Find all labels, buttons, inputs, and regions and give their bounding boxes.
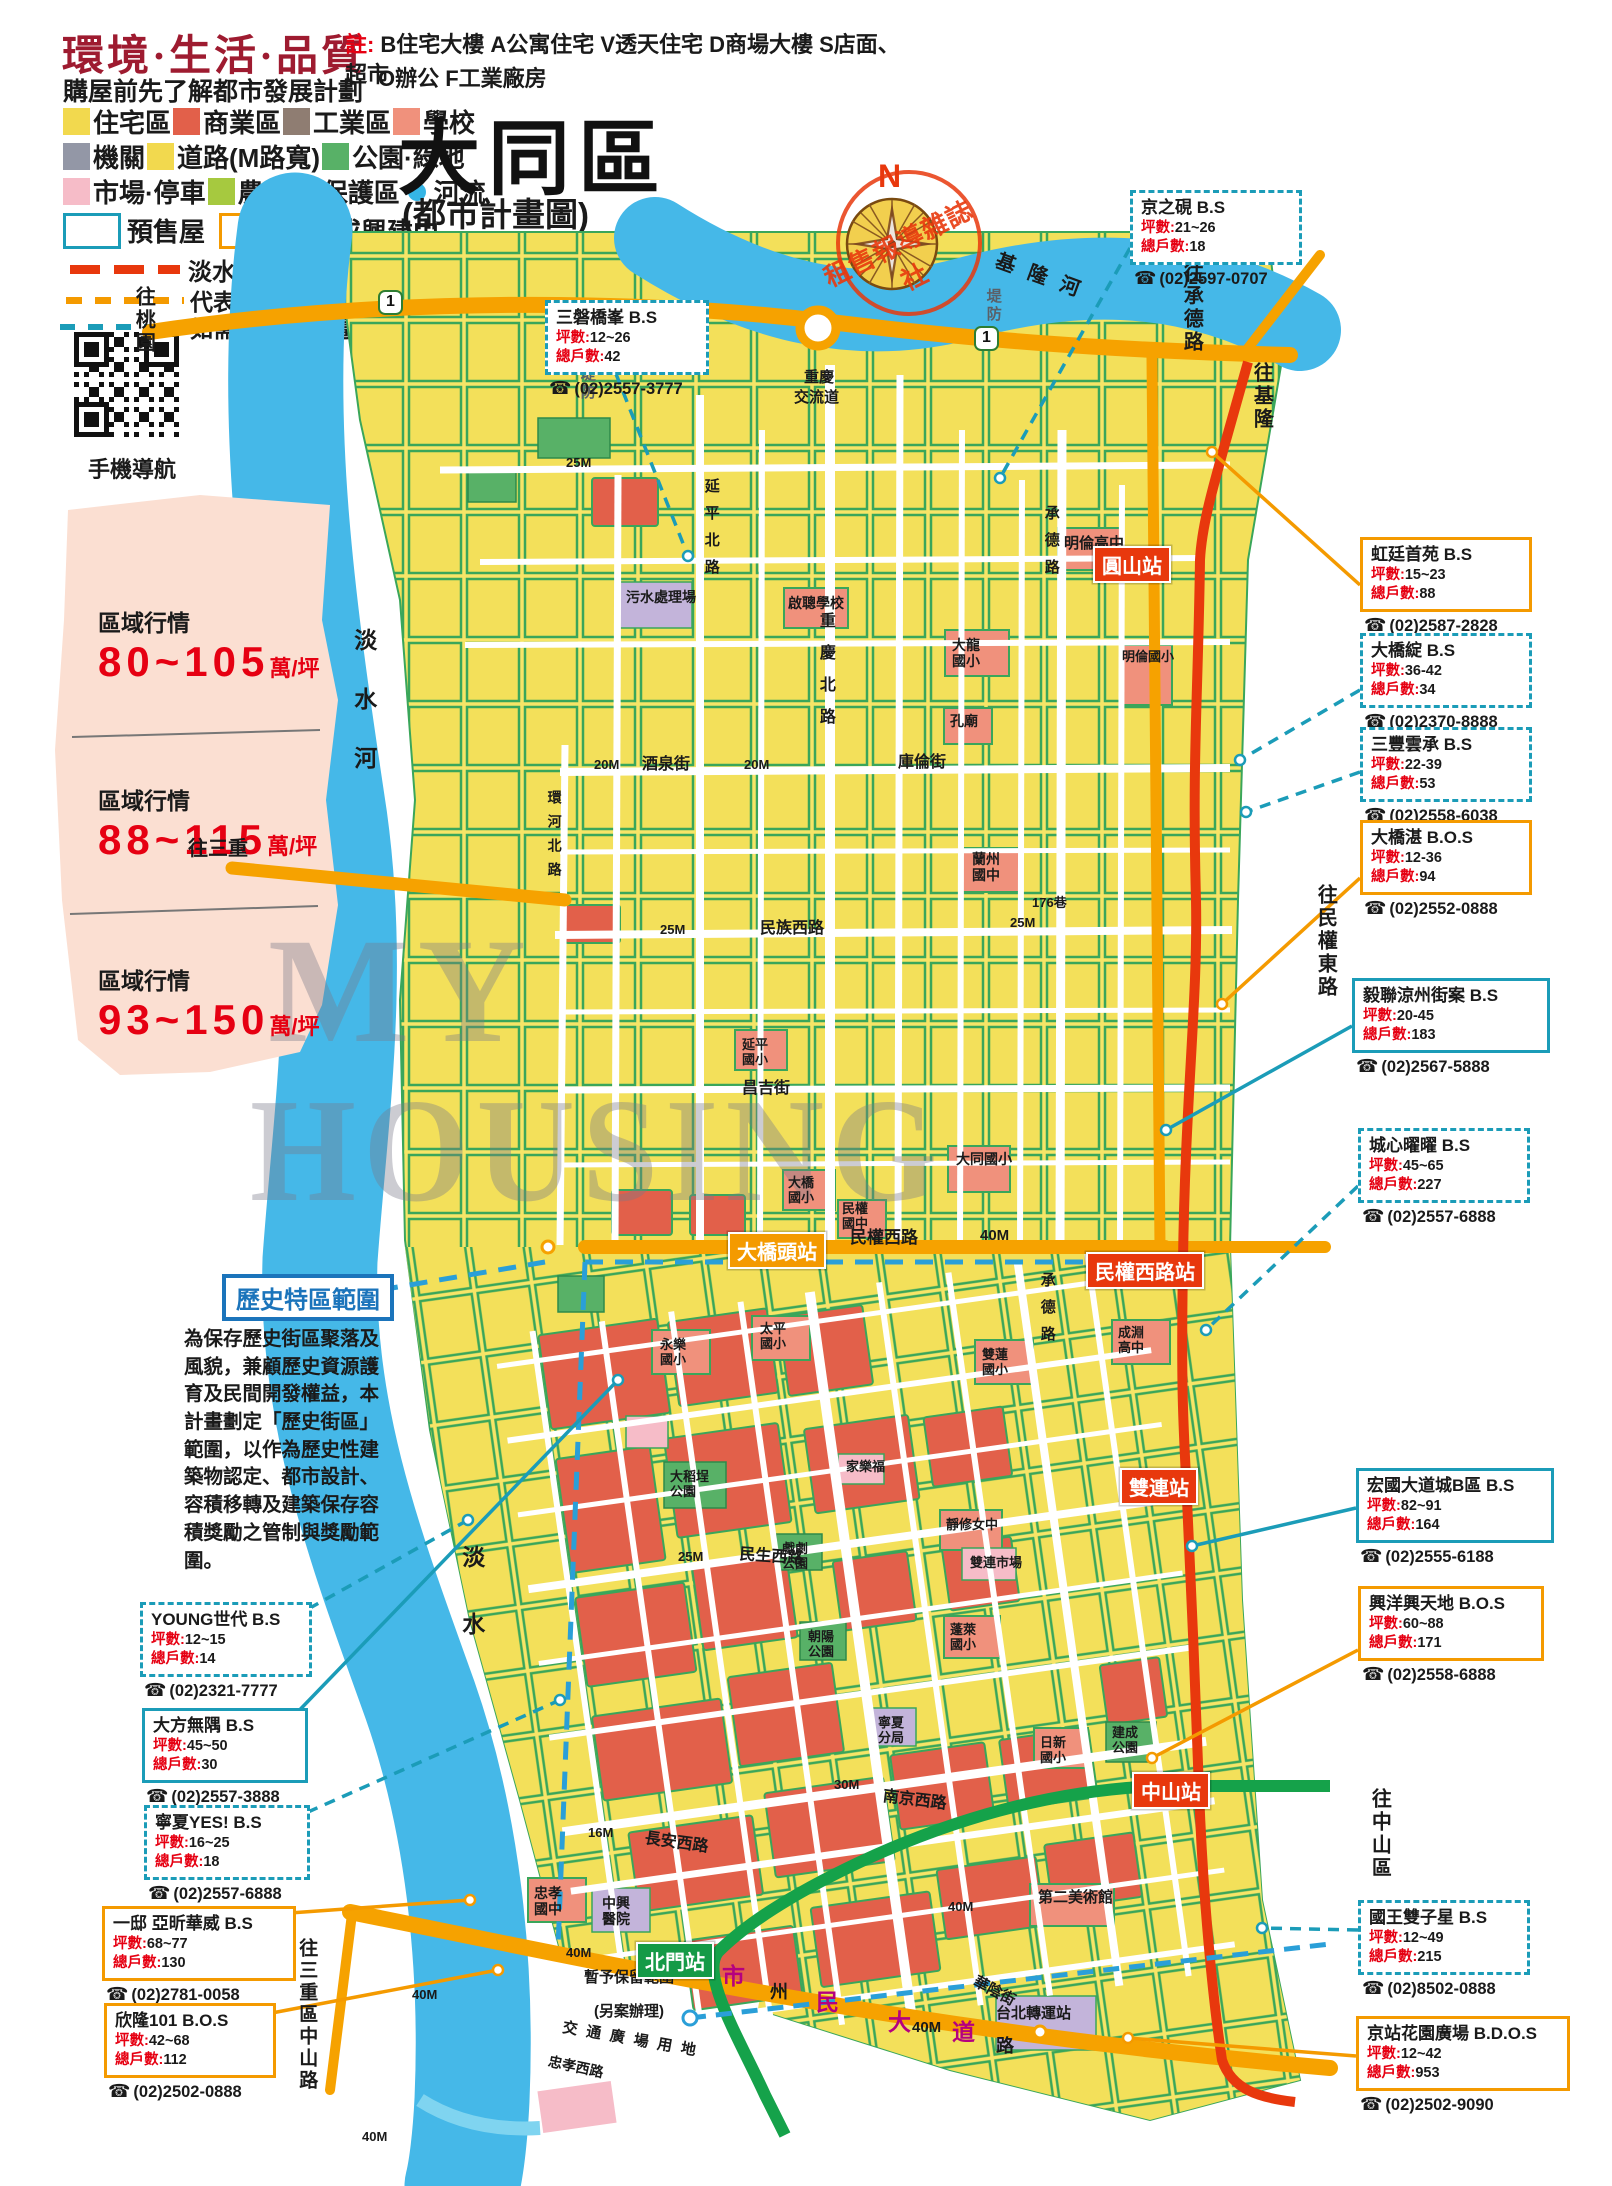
phone-icon: ☎ [1362,1664,1384,1684]
phone-icon: ☎ [549,378,571,398]
ping-value: 12~15 [185,1632,226,1648]
listing-ping-row: 坪數:12~49 [1369,1929,1519,1948]
listing-box: 大橋綻 B.S坪數:36-42總戶數:34 [1360,633,1532,708]
listing-callout: 興洋興天地 B.O.S坪數:60~88總戶數:171☎(02)2558-6888 [1358,1586,1544,1685]
listing-units-row: 總戶數:53 [1371,775,1521,794]
units-label: 總戶數: [151,1651,199,1667]
listing-callout: 宏國大道城B區 B.S坪數:82~91總戶數:164☎(02)2555-6188 [1356,1468,1554,1567]
ping-label: 坪數: [155,1835,189,1851]
listing-phone: ☎(02)2558-6888 [1362,1664,1544,1685]
units-label: 總戶數: [1371,586,1419,602]
listing-name: 三磐橋峯 B.S [556,307,698,329]
listing-phone: ☎(02)2557-6888 [148,1883,310,1904]
listing-units-row: 總戶數:164 [1367,1516,1543,1535]
ping-label: 坪數: [556,330,590,346]
phone-number: (02)2502-9090 [1385,2096,1493,2114]
listing-units-row: 總戶數:18 [1141,238,1291,257]
phone-icon: ☎ [1360,2094,1382,2114]
listing-phone: ☎(02)2567-5888 [1356,1056,1550,1077]
units-value: 227 [1417,1177,1441,1193]
listing-box: 京站花園廣場 B.D.O.S坪數:12~42總戶數:953 [1356,2016,1570,2091]
listing-name: 三豐雲承 B.S [1371,734,1521,756]
listing-phone: ☎(02)2552-0888 [1364,898,1532,919]
listing-name: 毅聯涼州街案 B.S [1363,985,1539,1007]
listing-box: 大方無隅 B.S坪數:45~50總戶數:30 [142,1708,308,1783]
ping-value: 60~88 [1403,1616,1444,1632]
listing-box: 京之硯 B.S坪數:21~26總戶數:18 [1130,190,1302,265]
listing-units-row: 總戶數:953 [1367,2064,1559,2083]
listing-ping-row: 坪數:20-45 [1363,1007,1539,1026]
listing-ping-row: 坪數:60~88 [1369,1615,1533,1634]
listing-callout: 國王雙子星 B.S坪數:12~49總戶數:215☎(02)8502-0888 [1358,1900,1530,1999]
listing-callout: 一邸 亞昕華威 B.S坪數:68~77總戶數:130☎(02)2781-0058 [102,1906,296,2005]
units-value: 88 [1419,586,1435,602]
listing-box: 興洋興天地 B.O.S坪數:60~88總戶數:171 [1358,1586,1544,1661]
listing-phone: ☎(02)2502-9090 [1360,2094,1570,2115]
units-value: 18 [1189,239,1205,255]
units-label: 總戶數: [155,1854,203,1870]
listing-name: 大方無隅 B.S [153,1715,297,1737]
ping-label: 坪數: [1369,1158,1403,1174]
phone-number: (02)2555-6188 [1385,1548,1493,1566]
units-label: 總戶數: [1367,2065,1415,2081]
phone-icon: ☎ [1134,268,1156,288]
listing-name: 寧夏YES! B.S [155,1812,299,1834]
listing-box: 毅聯涼州街案 B.S坪數:20-45總戶數:183 [1352,978,1550,1053]
phone-icon: ☎ [1364,615,1386,635]
listing-ping-row: 坪數:12~26 [556,329,698,348]
listing-callout: 城心曜曜 B.S坪數:45~65總戶數:227☎(02)2557-6888 [1358,1128,1530,1227]
listing-name: 大橋湛 B.O.S [1371,827,1521,849]
units-label: 總戶數: [1371,682,1419,698]
listing-box: 寧夏YES! B.S坪數:16~25總戶數:18 [144,1805,310,1880]
listing-callout: 京之硯 B.S坪數:21~26總戶數:18☎(02)2597-0707 [1130,190,1302,289]
units-value: 18 [203,1854,219,1870]
listing-units-row: 總戶數:112 [115,2051,265,2070]
ping-value: 15~23 [1405,567,1446,583]
units-value: 53 [1419,776,1435,792]
units-label: 總戶數: [1369,1177,1417,1193]
listing-phone: ☎(02)2555-6188 [1360,1546,1554,1567]
ping-value: 12~49 [1403,1930,1444,1946]
ping-label: 坪數: [1371,663,1405,679]
listing-units-row: 總戶數:34 [1371,681,1521,700]
units-value: 215 [1417,1949,1441,1965]
listing-phone: ☎(02)2597-0707 [1134,268,1302,289]
listing-box: YOUNG世代 B.S坪數:12~15總戶數:14 [140,1602,312,1677]
listing-name: 京站花園廣場 B.D.O.S [1367,2023,1559,2045]
listing-callout: 欣隆101 B.O.S坪數:42~68總戶數:112☎(02)2502-0888 [104,2003,276,2102]
listing-name: YOUNG世代 B.S [151,1609,301,1631]
ping-label: 坪數: [1371,850,1405,866]
listing-box: 三豐雲承 B.S坪數:22-39總戶數:53 [1360,727,1532,802]
ping-value: 21~26 [1175,220,1216,236]
listing-callout: 大方無隅 B.S坪數:45~50總戶數:30☎(02)2557-3888 [142,1708,308,1807]
units-value: 183 [1411,1027,1435,1043]
phone-number: (02)2502-0888 [133,2083,241,2101]
listing-ping-row: 坪數:42~68 [115,2032,265,2051]
ping-value: 12~26 [590,330,631,346]
units-label: 總戶數: [153,1757,201,1773]
units-value: 130 [161,1955,185,1971]
units-value: 42 [604,349,620,365]
phone-icon: ☎ [146,1786,168,1806]
listing-units-row: 總戶數:171 [1369,1634,1533,1653]
listing-phone: ☎(02)2781-0058 [106,1984,296,2005]
ping-label: 坪數: [1367,2046,1401,2062]
listing-box: 大橋湛 B.O.S坪數:12-36總戶數:94 [1360,820,1532,895]
listing-callout-layer: 京之硯 B.S坪數:21~26總戶數:18☎(02)2597-0707三磐橋峯 … [0,0,1612,2186]
ping-label: 坪數: [1371,757,1405,773]
listing-name: 京之硯 B.S [1141,197,1291,219]
units-label: 總戶數: [1367,1517,1415,1533]
listing-box: 城心曜曜 B.S坪數:45~65總戶數:227 [1358,1128,1530,1203]
listing-name: 宏國大道城B區 B.S [1367,1475,1543,1497]
ping-value: 16~25 [189,1835,230,1851]
phone-number: (02)2552-0888 [1389,900,1497,918]
listing-ping-row: 坪數:16~25 [155,1834,299,1853]
ping-value: 36-42 [1405,663,1442,679]
listing-units-row: 總戶數:42 [556,348,698,367]
listing-units-row: 總戶數:227 [1369,1176,1519,1195]
phone-icon: ☎ [144,1680,166,1700]
listing-ping-row: 坪數:15~23 [1371,566,1521,585]
listing-name: 大橋綻 B.S [1371,640,1521,662]
listing-units-row: 總戶數:88 [1371,585,1521,604]
ping-value: 12~42 [1401,2046,1442,2062]
ping-value: 20-45 [1397,1008,1434,1024]
listing-ping-row: 坪數:12~15 [151,1631,301,1650]
ping-label: 坪數: [1367,1498,1401,1514]
ping-label: 坪數: [1369,1616,1403,1632]
ping-value: 45~65 [1403,1158,1444,1174]
phone-icon: ☎ [1362,1978,1384,1998]
phone-icon: ☎ [148,1883,170,1903]
listing-units-row: 總戶數:130 [113,1954,285,1973]
listing-callout: YOUNG世代 B.S坪數:12~15總戶數:14☎(02)2321-7777 [140,1602,312,1701]
listing-phone: ☎(02)2557-6888 [1362,1206,1530,1227]
phone-number: (02)2597-0707 [1159,270,1267,288]
phone-number: (02)2567-5888 [1381,1058,1489,1076]
phone-number: (02)8502-0888 [1387,1980,1495,1998]
ping-value: 12-36 [1405,850,1442,866]
listing-callout: 毅聯涼州街案 B.S坪數:20-45總戶數:183☎(02)2567-5888 [1352,978,1550,1077]
listing-ping-row: 坪數:45~50 [153,1737,297,1756]
phone-number: (02)2557-6888 [173,1885,281,1903]
phone-number: (02)2321-7777 [169,1682,277,1700]
ping-label: 坪數: [151,1632,185,1648]
listing-units-row: 總戶數:30 [153,1756,297,1775]
phone-icon: ☎ [1360,1546,1382,1566]
listing-phone: ☎(02)2502-0888 [108,2081,276,2102]
ping-label: 坪數: [115,2033,149,2049]
listing-units-row: 總戶數:183 [1363,1026,1539,1045]
listing-units-row: 總戶數:14 [151,1650,301,1669]
phone-icon: ☎ [106,1984,128,2004]
phone-number: (02)2781-0058 [131,1986,239,2004]
listing-name: 欣隆101 B.O.S [115,2010,265,2032]
ping-value: 42~68 [149,2033,190,2049]
units-label: 總戶數: [556,349,604,365]
ping-value: 68~77 [147,1936,188,1952]
listing-callout: 三豐雲承 B.S坪數:22-39總戶數:53☎(02)2558-6038 [1360,727,1532,826]
phone-number: (02)2557-3888 [171,1788,279,1806]
listing-ping-row: 坪數:22-39 [1371,756,1521,775]
phone-icon: ☎ [1362,1206,1384,1226]
listing-units-row: 總戶數:215 [1369,1948,1519,1967]
listing-ping-row: 坪數:12~42 [1367,2045,1559,2064]
listing-box: 三磐橋峯 B.S坪數:12~26總戶數:42 [545,300,709,375]
magazine-map-page: MY HOUSING 環境·生活·品質 購屋前先了解都市發展計劃 註:B住宅大樓… [0,0,1612,2186]
units-label: 總戶數: [113,1955,161,1971]
units-label: 總戶數: [1141,239,1189,255]
phone-icon: ☎ [108,2081,130,2101]
listing-name: 興洋興天地 B.O.S [1369,1593,1533,1615]
ping-label: 坪數: [1371,567,1405,583]
units-value: 164 [1415,1517,1439,1533]
listing-name: 一邸 亞昕華威 B.S [113,1913,285,1935]
listing-box: 宏國大道城B區 B.S坪數:82~91總戶數:164 [1356,1468,1554,1543]
listing-box: 一邸 亞昕華威 B.S坪數:68~77總戶數:130 [102,1906,296,1981]
units-label: 總戶數: [1363,1027,1411,1043]
ping-label: 坪數: [113,1936,147,1952]
listing-phone: ☎(02)8502-0888 [1362,1978,1530,1999]
units-value: 14 [199,1651,215,1667]
listing-callout: 虹廷首苑 B.S坪數:15~23總戶數:88☎(02)2587-2828 [1360,537,1532,636]
units-value: 171 [1417,1635,1441,1651]
listing-box: 虹廷首苑 B.S坪數:15~23總戶數:88 [1360,537,1532,612]
units-value: 34 [1419,682,1435,698]
units-value: 953 [1415,2065,1439,2081]
units-label: 總戶數: [1371,776,1419,792]
listing-callout: 三磐橋峯 B.S坪數:12~26總戶數:42☎(02)2557-3777 [545,300,709,399]
listing-ping-row: 坪數:12-36 [1371,849,1521,868]
units-value: 30 [201,1757,217,1773]
listing-callout: 寧夏YES! B.S坪數:16~25總戶數:18☎(02)2557-6888 [144,1805,310,1904]
ping-label: 坪數: [1363,1008,1397,1024]
phone-icon: ☎ [1356,1056,1378,1076]
listing-box: 欣隆101 B.O.S坪數:42~68總戶數:112 [104,2003,276,2078]
listing-name: 虹廷首苑 B.S [1371,544,1521,566]
phone-number: (02)2558-6888 [1387,1666,1495,1684]
listing-callout: 大橋綻 B.S坪數:36-42總戶數:34☎(02)2370-8888 [1360,633,1532,732]
listing-ping-row: 坪數:21~26 [1141,219,1291,238]
listing-units-row: 總戶數:94 [1371,868,1521,887]
listing-name: 國王雙子星 B.S [1369,1907,1519,1929]
listing-phone: ☎(02)2557-3888 [146,1786,308,1807]
listing-name: 城心曜曜 B.S [1369,1135,1519,1157]
units-label: 總戶數: [1369,1635,1417,1651]
units-label: 總戶數: [1371,869,1419,885]
units-label: 總戶數: [1369,1949,1417,1965]
listing-phone: ☎(02)2557-3777 [549,378,709,399]
ping-label: 坪數: [1369,1930,1403,1946]
units-value: 94 [1419,869,1435,885]
units-value: 112 [163,2052,186,2068]
ping-label: 坪數: [1141,220,1175,236]
listing-units-row: 總戶數:18 [155,1853,299,1872]
units-label: 總戶數: [115,2052,163,2068]
listing-box: 國王雙子星 B.S坪數:12~49總戶數:215 [1358,1900,1530,1975]
listing-ping-row: 坪數:45~65 [1369,1157,1519,1176]
listing-phone: ☎(02)2321-7777 [144,1680,312,1701]
listing-callout: 大橋湛 B.O.S坪數:12-36總戶數:94☎(02)2552-0888 [1360,820,1532,919]
listing-ping-row: 坪數:82~91 [1367,1497,1543,1516]
phone-number: (02)2557-3777 [574,380,682,398]
ping-label: 坪數: [153,1738,187,1754]
phone-number: (02)2557-6888 [1387,1208,1495,1226]
listing-ping-row: 坪數:68~77 [113,1935,285,1954]
ping-value: 22-39 [1405,757,1442,773]
phone-icon: ☎ [1364,898,1386,918]
ping-value: 82~91 [1401,1498,1442,1514]
ping-value: 45~50 [187,1738,228,1754]
listing-ping-row: 坪數:36-42 [1371,662,1521,681]
listing-callout: 京站花園廣場 B.D.O.S坪數:12~42總戶數:953☎(02)2502-9… [1356,2016,1570,2115]
